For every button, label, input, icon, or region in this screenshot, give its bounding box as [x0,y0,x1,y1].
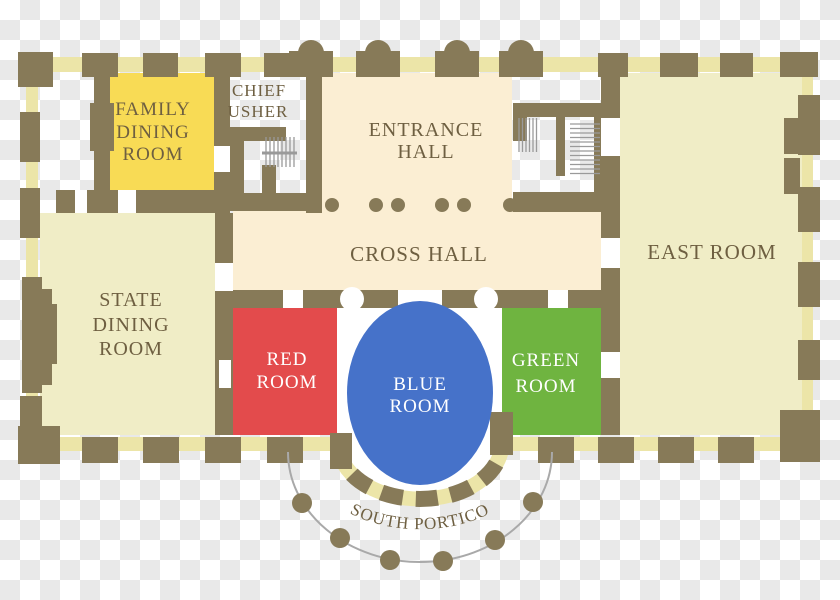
label-state-dining-1: STATE [99,289,162,311]
label-state-dining-2: DINING [92,314,169,336]
label-family-dining-2: DINING [116,122,190,143]
transparency-checkerboard: FAMILY DINING ROOM CHIEF USHER ENTRANCE … [0,0,840,600]
label-blue-room-2: ROOM [389,396,450,417]
label-family-dining-1: FAMILY [115,99,191,120]
label-state-dining-3: ROOM [99,338,163,360]
label-east-room: EAST ROOM [647,240,776,264]
label-green-room-1: GREEN [512,350,580,371]
label-red-room-1: RED [267,349,308,370]
label-chief-usher-2: USHER [228,102,289,121]
floor-plan: FAMILY DINING ROOM CHIEF USHER ENTRANCE … [0,0,840,600]
label-green-room-2: ROOM [515,376,576,397]
label-red-room-2: ROOM [256,372,317,393]
label-family-dining-3: ROOM [122,144,183,165]
side-staircase-icon [262,137,297,167]
label-chief-usher-1: CHIEF [232,81,286,100]
label-entrance-hall-2: HALL [397,141,454,163]
label-entrance-hall-1: ENTRANCE [369,119,484,141]
label-cross-hall: CROSS HALL [350,242,488,266]
room-green [502,307,602,435]
label-blue-room-1: BLUE [393,374,447,395]
